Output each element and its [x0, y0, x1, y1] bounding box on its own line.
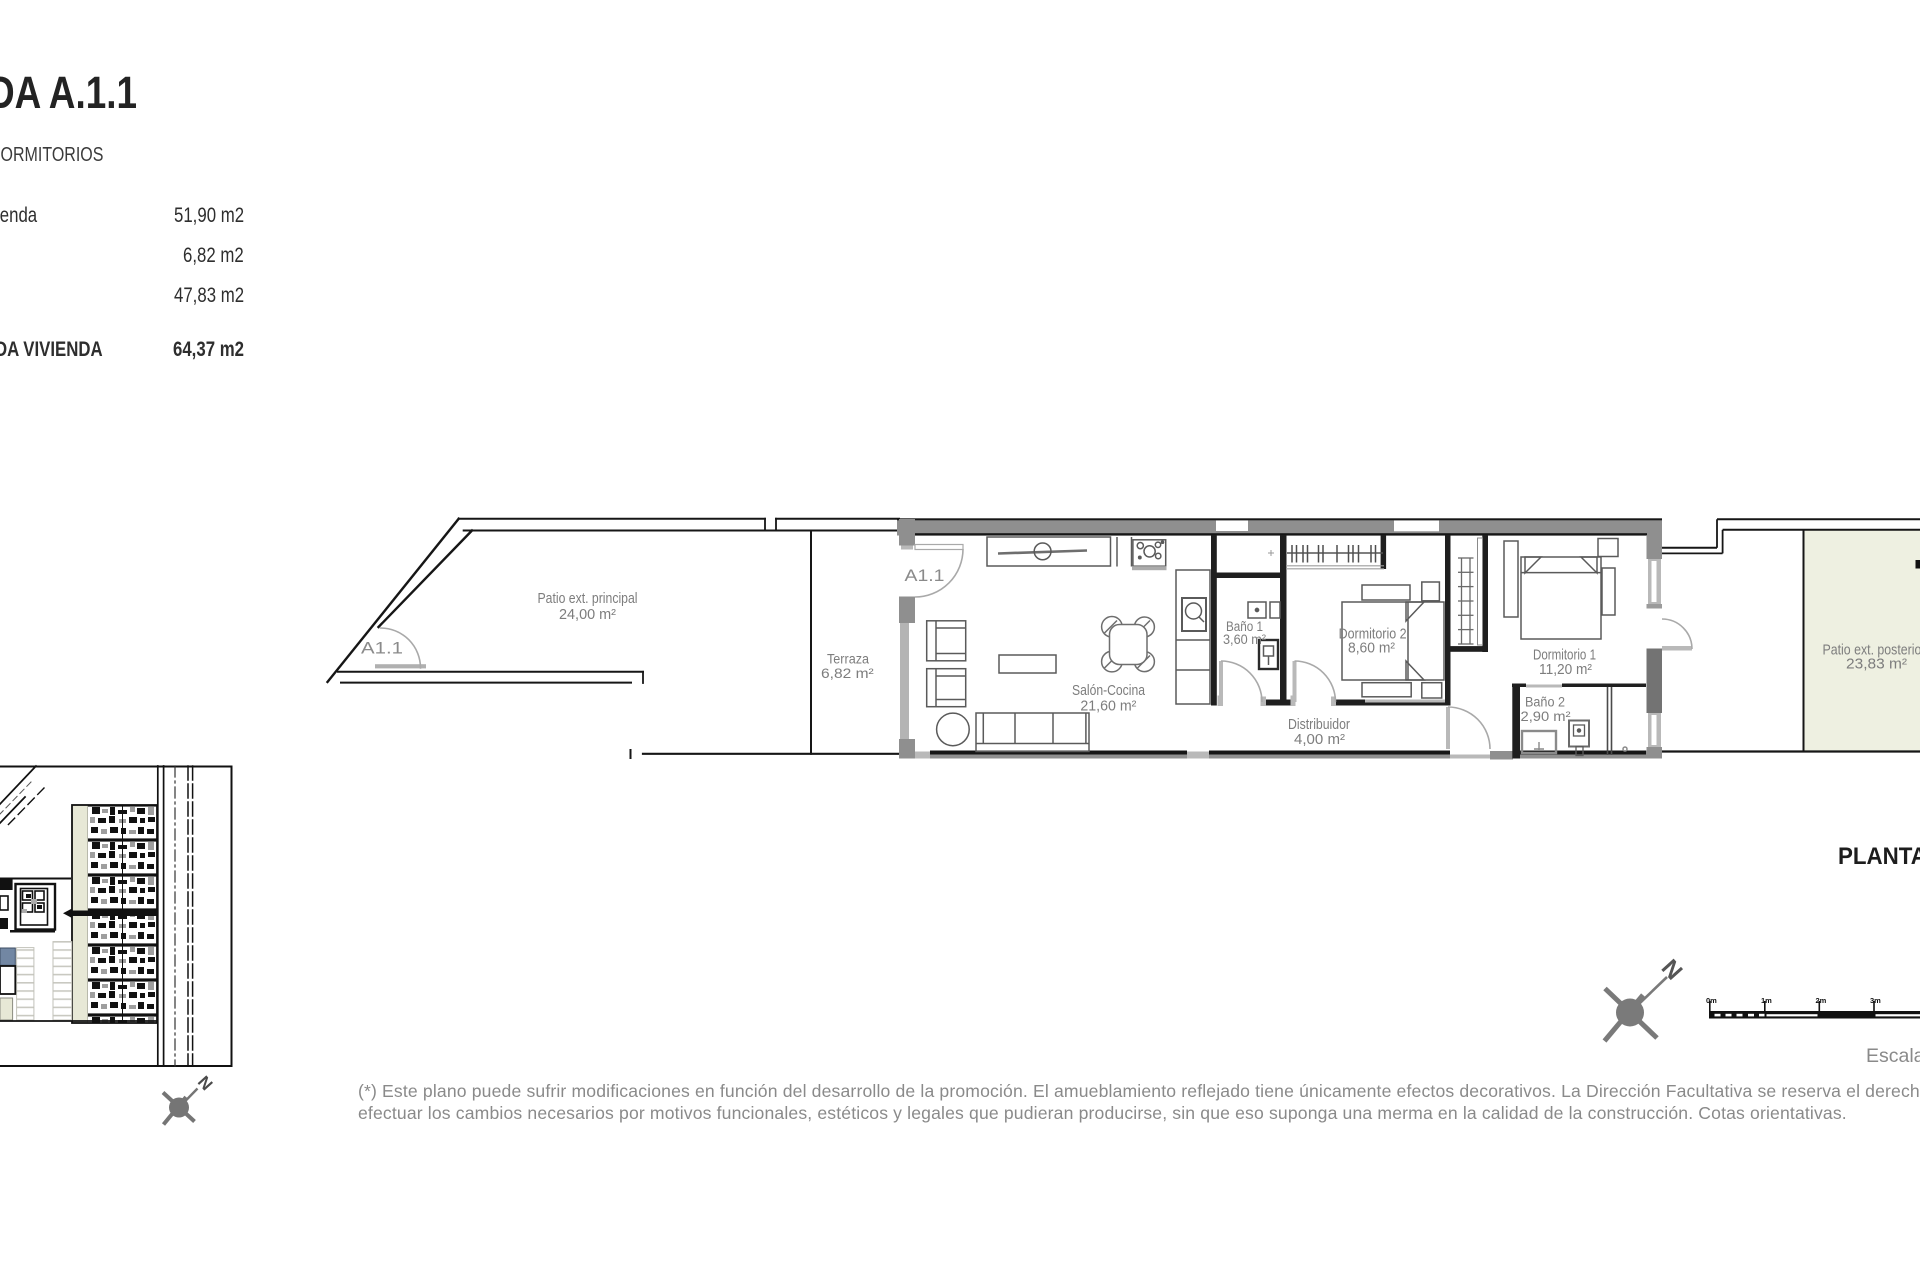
svg-text:Escala 1:75: Escala 1:75 [1866, 1045, 1920, 1067]
svg-text:2m: 2m [1816, 996, 1827, 1005]
svg-text:0m: 0m [1706, 996, 1717, 1005]
svg-text:PLANTA BAJA: PLANTA BAJA [1838, 843, 1920, 870]
svg-text:Distribuidor: Distribuidor [1288, 717, 1350, 733]
svg-text:3m: 3m [1870, 996, 1881, 1005]
svg-text:N: N [194, 1072, 216, 1094]
svg-text:Baño 2: Baño 2 [1525, 695, 1565, 710]
svg-text:6,82 m²: 6,82 m² [821, 666, 874, 681]
svg-text:2,90 m²: 2,90 m² [1521, 709, 1572, 724]
svg-text:A1.1: A1.1 [361, 639, 403, 658]
svg-text:3,60 m²: 3,60 m² [1223, 632, 1266, 647]
svg-text:21,60 m²: 21,60 m² [1080, 699, 1136, 715]
svg-text:8,60 m²: 8,60 m² [1348, 641, 1395, 657]
svg-text:N: N [1656, 955, 1688, 986]
svg-text:1m: 1m [1761, 996, 1772, 1005]
svg-text:23,83 m²: 23,83 m² [1846, 657, 1907, 673]
svg-text:11,20 m²: 11,20 m² [1539, 662, 1592, 678]
svg-text:Salón-Cocina: Salón-Cocina [1072, 683, 1146, 699]
svg-text:24,00 m²: 24,00 m² [559, 607, 616, 623]
svg-text:Terraza: Terraza [827, 652, 869, 667]
svg-text:A1.1: A1.1 [905, 566, 945, 585]
svg-text:Patio ext. principal: Patio ext. principal [538, 591, 638, 607]
svg-text:4,00 m²: 4,00 m² [1294, 732, 1345, 748]
